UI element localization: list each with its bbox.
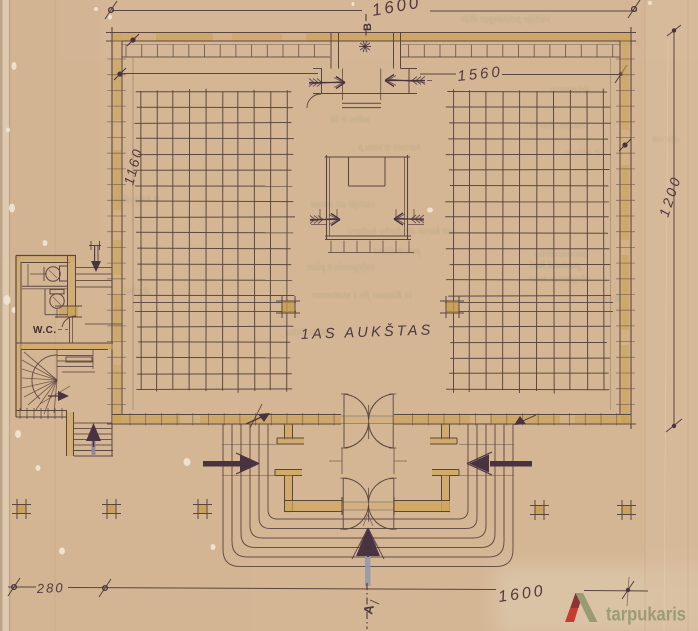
svg-text:patobulinta: patobulinta <box>374 246 421 257</box>
svg-text:vietoje an nauja: vietoje an nauja <box>311 199 375 210</box>
svg-text:kuriuos is vietu p: kuriuos is vietu p <box>358 142 420 152</box>
svg-text:is Kauno jis i statomas: is Kauno jis i statomas <box>312 289 412 301</box>
svg-text:ir salia vy: ir salia vy <box>564 147 600 157</box>
svg-text:del pastato: del pastato <box>550 84 590 94</box>
svg-text:vietoje pastangas dide: vietoje pastangas dide <box>460 14 550 25</box>
svg-text:tarpukaris: tarpukaris <box>606 605 686 626</box>
svg-text:salies ir lik: salies ir lik <box>329 114 370 124</box>
svg-text:salygomis o plan: salygomis o plan <box>307 262 375 273</box>
svg-text:W.C.: W.C. <box>33 325 57 336</box>
svg-text:zmoniu dirbo: zmoniu dirbo <box>535 249 589 260</box>
svg-text:alia vid: alia vid <box>652 134 680 144</box>
svg-text:B: B <box>362 22 374 31</box>
svg-text:ant kurso de darbu kultura: ant kurso de darbu kultura <box>348 226 455 237</box>
svg-text:280: 280 <box>36 580 65 596</box>
